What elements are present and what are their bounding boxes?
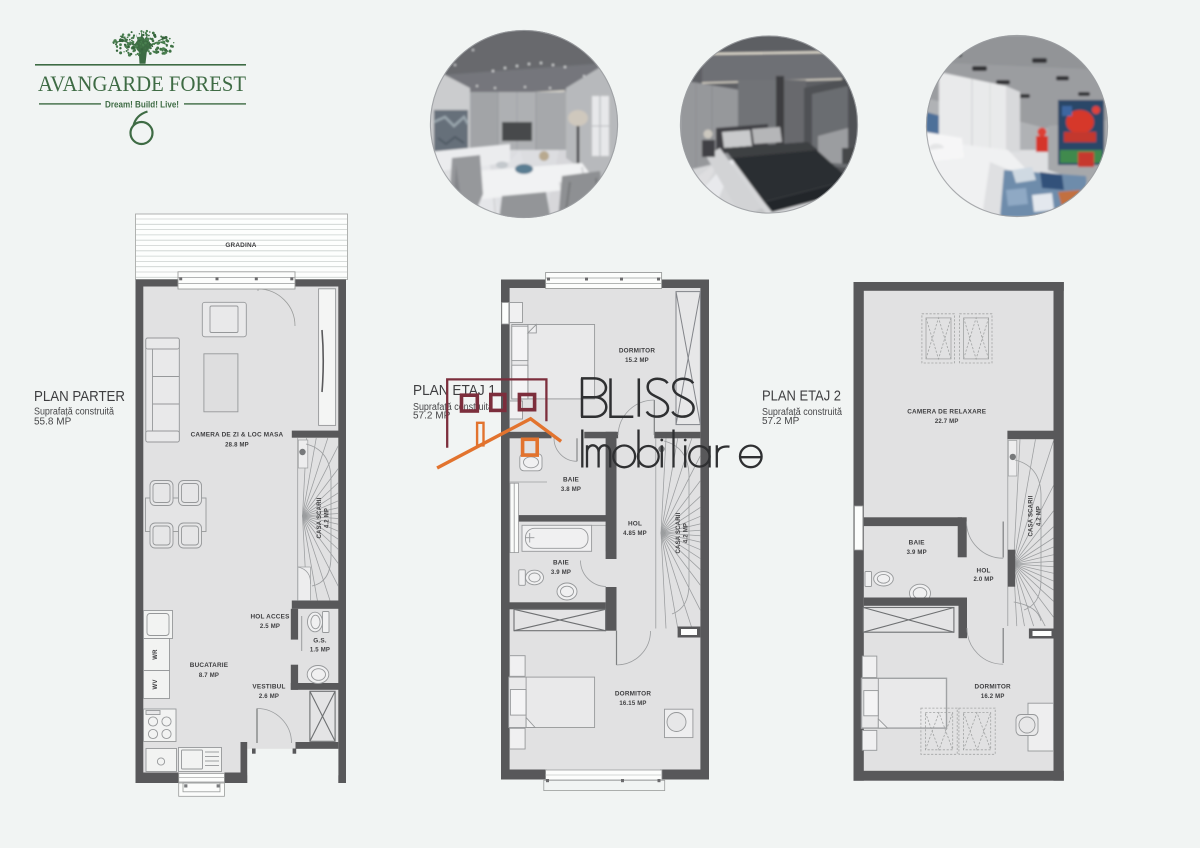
svg-text:22.7 MP: 22.7 MP <box>935 419 959 425</box>
svg-text:15.2 MP: 15.2 MP <box>625 358 649 364</box>
svg-text:4.2 MP: 4.2 MP <box>325 508 331 528</box>
svg-text:2.6 MP: 2.6 MP <box>259 694 279 700</box>
svg-text:PLAN ETAJ 1: PLAN ETAJ 1 <box>413 383 496 399</box>
svg-text:CASA SCARII: CASA SCARII <box>676 512 682 553</box>
svg-text:2.5 MP: 2.5 MP <box>260 624 280 630</box>
svg-text:WR: WR <box>153 649 159 660</box>
svg-text:VESTIBUL: VESTIBUL <box>252 684 285 691</box>
svg-text:PLAN ETAJ 2: PLAN ETAJ 2 <box>762 389 841 405</box>
svg-text:AVANGARDE FOREST: AVANGARDE FOREST <box>38 71 246 96</box>
svg-text:CASA SCARII: CASA SCARII <box>1029 495 1035 536</box>
svg-text:4.2 MP: 4.2 MP <box>1037 506 1043 526</box>
svg-text:DORMITOR: DORMITOR <box>975 684 1011 691</box>
svg-text:PLAN PARTER: PLAN PARTER <box>34 389 125 405</box>
svg-text:WV: WV <box>153 679 159 689</box>
svg-text:G.S.: G.S. <box>313 638 327 645</box>
svg-text:4.2 MP: 4.2 MP <box>684 523 690 543</box>
svg-text:Dream! Build! Live!: Dream! Build! Live! <box>105 100 179 110</box>
svg-text:8.7 MP: 8.7 MP <box>199 673 219 679</box>
svg-text:HOL ACCES: HOL ACCES <box>250 614 290 621</box>
svg-text:16.2 MP: 16.2 MP <box>981 694 1005 700</box>
svg-text:3.8 MP: 3.8 MP <box>561 487 581 493</box>
svg-text:DORMITOR: DORMITOR <box>619 348 655 355</box>
svg-text:3.9 MP: 3.9 MP <box>551 570 571 576</box>
svg-text:HOL: HOL <box>628 521 642 528</box>
svg-text:CAMERA DE ZI & LOC MASA: CAMERA DE ZI & LOC MASA <box>191 432 284 439</box>
svg-text:DORMITOR: DORMITOR <box>615 691 651 698</box>
svg-text:1.5 MP: 1.5 MP <box>310 648 330 654</box>
svg-text:BUCATARIE: BUCATARIE <box>190 662 229 669</box>
svg-text:HOL: HOL <box>977 568 991 575</box>
svg-text:55.8 MP: 55.8 MP <box>34 417 72 428</box>
svg-text:BAIE: BAIE <box>553 560 570 567</box>
svg-text:GRADINA: GRADINA <box>225 242 256 249</box>
svg-text:BAIE: BAIE <box>909 540 926 547</box>
svg-text:28.8 MP: 28.8 MP <box>225 443 249 449</box>
svg-text:CAMERA DE RELAXARE: CAMERA DE RELAXARE <box>907 409 987 416</box>
svg-text:3.9 MP: 3.9 MP <box>907 550 927 556</box>
svg-text:2.0 MP: 2.0 MP <box>973 577 993 583</box>
svg-text:BAIE: BAIE <box>563 477 580 484</box>
svg-text:57.2 MP: 57.2 MP <box>762 416 800 427</box>
svg-text:57.2 MP: 57.2 MP <box>413 410 451 421</box>
svg-text:16.15 MP: 16.15 MP <box>619 701 646 707</box>
svg-text:4.85 MP: 4.85 MP <box>623 531 647 537</box>
svg-text:CASA SCARII: CASA SCARII <box>317 497 323 538</box>
